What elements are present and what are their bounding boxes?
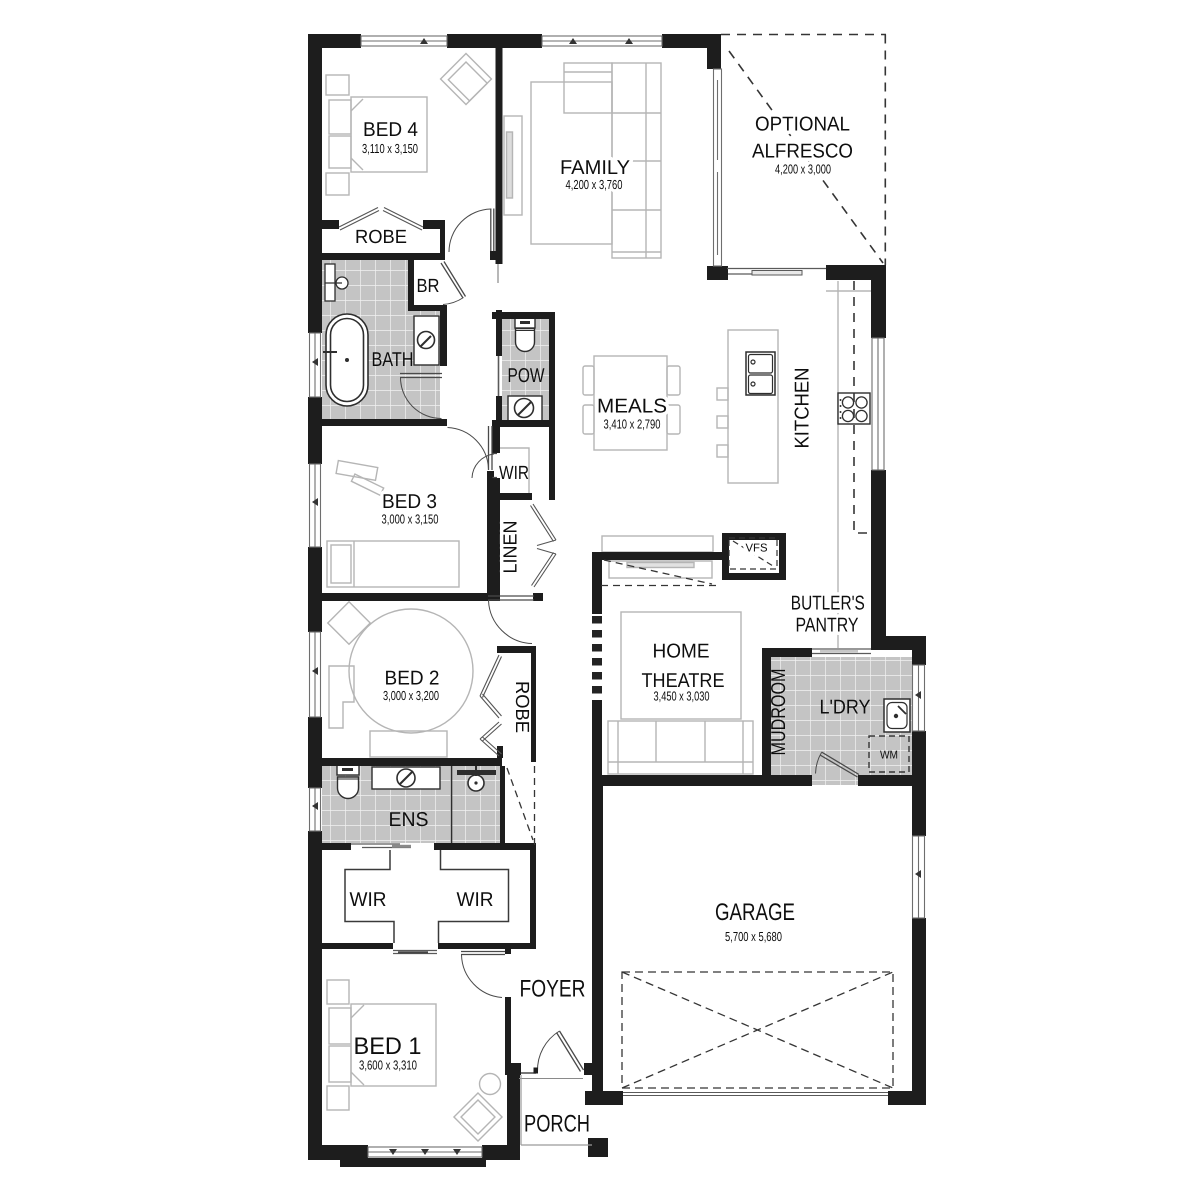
svg-text:MUDROOM: MUDROOM (768, 669, 790, 756)
svg-text:WIR: WIR (457, 889, 494, 911)
svg-text:MEALS: MEALS (597, 396, 667, 418)
svg-text:4,200 x 3,000: 4,200 x 3,000 (775, 162, 831, 177)
svg-text:BR: BR (417, 276, 440, 297)
svg-text:FAMILY: FAMILY (560, 157, 630, 179)
svg-text:3,410 x 2,790: 3,410 x 2,790 (604, 417, 661, 432)
svg-text:BUTLER'S: BUTLER'S (791, 593, 865, 615)
svg-text:3,000 x 3,200: 3,000 x 3,200 (383, 688, 439, 703)
svg-text:GARAGE: GARAGE (715, 899, 795, 926)
svg-text:FOYER: FOYER (520, 976, 586, 1003)
svg-text:ROBE: ROBE (355, 227, 407, 248)
svg-text:PORCH: PORCH (524, 1111, 590, 1138)
svg-text:BED 4: BED 4 (363, 119, 418, 141)
svg-text:BED 1: BED 1 (354, 1033, 422, 1060)
svg-text:BED 2: BED 2 (385, 668, 440, 690)
svg-text:BATH: BATH (372, 349, 414, 371)
svg-text:WM: WM (880, 750, 898, 762)
svg-text:ROBE: ROBE (511, 681, 532, 733)
svg-text:ALFRESCO: ALFRESCO (752, 141, 853, 163)
svg-text:OPTIONAL: OPTIONAL (755, 114, 850, 136)
svg-text:BED 3: BED 3 (382, 491, 437, 513)
svg-text:POW: POW (508, 365, 545, 387)
svg-text:5,700 x 5,680: 5,700 x 5,680 (725, 929, 782, 944)
svg-text:3,600 x 3,310: 3,600 x 3,310 (359, 1058, 417, 1073)
svg-text:4,200 x 3,760: 4,200 x 3,760 (566, 177, 623, 192)
svg-text:KITCHEN: KITCHEN (792, 368, 814, 449)
svg-text:PANTRY: PANTRY (796, 615, 859, 637)
svg-text:WIR: WIR (499, 463, 529, 484)
svg-text:VFS: VFS (746, 543, 768, 555)
svg-text:HOME: HOME (653, 641, 710, 663)
svg-text:3,450 x 3,030: 3,450 x 3,030 (654, 689, 710, 704)
svg-text:3,000 x 3,150: 3,000 x 3,150 (382, 512, 439, 527)
svg-text:WIR: WIR (350, 889, 387, 911)
svg-text:3,110 x 3,150: 3,110 x 3,150 (362, 141, 418, 156)
svg-text:L'DRY: L'DRY (820, 697, 871, 719)
svg-text:ENS: ENS (389, 809, 429, 831)
svg-text:LINEN: LINEN (501, 521, 522, 574)
